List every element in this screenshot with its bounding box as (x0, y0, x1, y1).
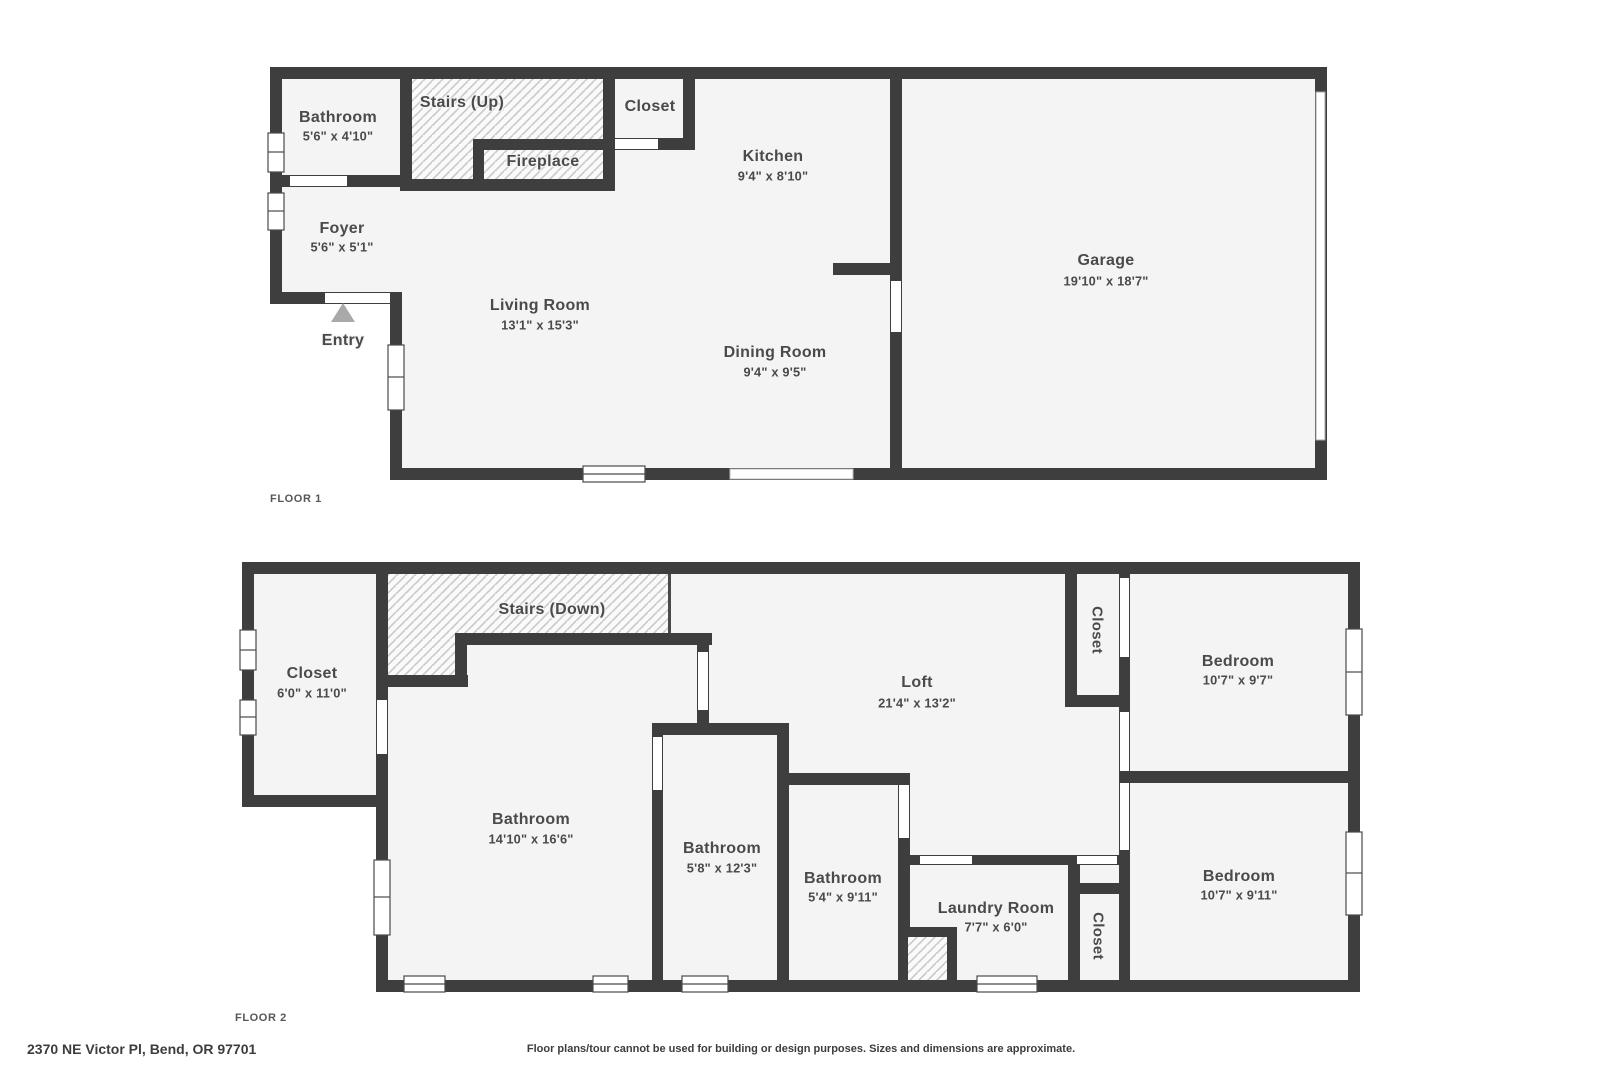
room-label-closet-top: Closet (1089, 606, 1106, 654)
sliding-door-opening (730, 469, 853, 479)
wall (1065, 574, 1077, 705)
wall (400, 179, 615, 191)
door-opening (377, 700, 387, 754)
wall (1065, 695, 1130, 707)
disclaimer-text: Floor plans/tour cannot be used for buil… (527, 1043, 1075, 1055)
garage-window-strip (1316, 92, 1325, 440)
room-label-closet-room: Closet (287, 665, 338, 683)
room-label-bathroom-f1: Bathroom (299, 109, 377, 127)
room-label-garage: Garage (1078, 252, 1135, 270)
room-dims-bathroom-large: 14'10" x 16'6" (488, 832, 573, 847)
floor1-tag: FLOOR 1 (270, 493, 322, 505)
wall (777, 723, 789, 980)
wall (455, 633, 712, 645)
door-opening (1077, 856, 1117, 864)
door-opening (290, 176, 347, 186)
room-dims-dining-room: 9'4" x 9'5" (743, 365, 806, 380)
door-opening (1120, 578, 1129, 657)
stairs-up-hatch (412, 139, 473, 179)
door-opening (698, 652, 708, 710)
floorplan-page: Bathroom 5'6" x 4'10" Stairs (Up) Closet… (0, 0, 1600, 1067)
room-label-bedroom-bottom: Bedroom (1203, 868, 1275, 886)
room-label-bathroom-mid: Bathroom (683, 840, 761, 858)
door-opening (615, 139, 658, 149)
wall (270, 67, 282, 304)
wall (603, 67, 615, 191)
room-dims-closet-room: 6'0" x 11'0" (277, 686, 347, 701)
room-label-laundry: Laundry Room (938, 900, 1055, 918)
room-label-dining-room: Dining Room (724, 344, 827, 362)
floor2-plan (240, 562, 1362, 992)
room-label-loft: Loft (901, 674, 932, 692)
wall (376, 675, 468, 687)
wall (1119, 771, 1360, 783)
wall (1068, 883, 1130, 894)
room-dims-kitchen: 9'4" x 8'10" (738, 169, 808, 184)
room-label-foyer: Foyer (319, 220, 364, 238)
wall (683, 67, 695, 150)
room-label-living-room: Living Room (490, 297, 590, 315)
floor2-tag: FLOOR 2 (235, 1012, 287, 1024)
water-heater-hatch (908, 937, 947, 980)
wall (473, 139, 484, 191)
wall (242, 562, 1360, 574)
room-label-kitchen: Kitchen (743, 148, 804, 166)
room-label-stairs-up: Stairs (Up) (420, 94, 504, 112)
stairs-down-hatch (388, 633, 455, 675)
wall (473, 139, 615, 150)
room-label-bedroom-top: Bedroom (1202, 653, 1274, 671)
wall (242, 795, 388, 807)
room-dims-bedroom-bottom: 10'7" x 9'11" (1200, 888, 1277, 903)
room-dims-foyer: 5'6" x 5'1" (310, 240, 373, 255)
room-dims-bathroom-mid: 5'8" x 12'3" (687, 861, 757, 876)
floor1-plan (268, 67, 1327, 482)
wall (890, 67, 902, 480)
room-dims-loft: 21'4" x 13'2" (878, 696, 956, 711)
wall (242, 562, 254, 807)
room-label-bathroom-large: Bathroom (492, 811, 570, 829)
room-label-closet-f1: Closet (625, 98, 676, 116)
room-dims-bathroom-f1: 5'6" x 4'10" (303, 129, 373, 144)
room-label-closet-bottom: Closet (1090, 912, 1107, 960)
room-dims-bedroom-top: 10'7" x 9'7" (1203, 673, 1273, 688)
room-label-fireplace: Fireplace (507, 153, 580, 171)
door-opening (1120, 783, 1129, 850)
wall (390, 468, 1327, 480)
door-opening (891, 281, 901, 332)
room-label-stairs-down: Stairs (Down) (498, 601, 605, 619)
room-dims-living-room: 13'1" x 15'3" (501, 318, 579, 333)
wall (787, 773, 910, 785)
wall (1068, 855, 1080, 980)
door-opening (899, 785, 909, 838)
room-dims-bathroom-small: 5'4" x 9'11" (808, 890, 878, 905)
wall (376, 980, 1360, 992)
wall (400, 67, 412, 187)
door-opening (920, 856, 972, 864)
entry-arrow-icon (331, 303, 355, 322)
room-label-bathroom-small: Bathroom (804, 870, 882, 888)
property-address: 2370 NE Victor Pl, Bend, OR 97701 (27, 1041, 256, 1057)
entry-label: Entry (322, 332, 364, 350)
wall (652, 723, 787, 735)
stairs-edge-line (668, 574, 671, 633)
wall (833, 263, 890, 275)
wall (270, 67, 1327, 79)
door-opening (653, 737, 662, 790)
door-opening (325, 293, 390, 303)
room-dims-laundry: 7'7" x 6'0" (964, 920, 1027, 935)
room-dims-garage: 19'10" x 18'7" (1063, 274, 1148, 289)
door-opening (1120, 712, 1129, 771)
